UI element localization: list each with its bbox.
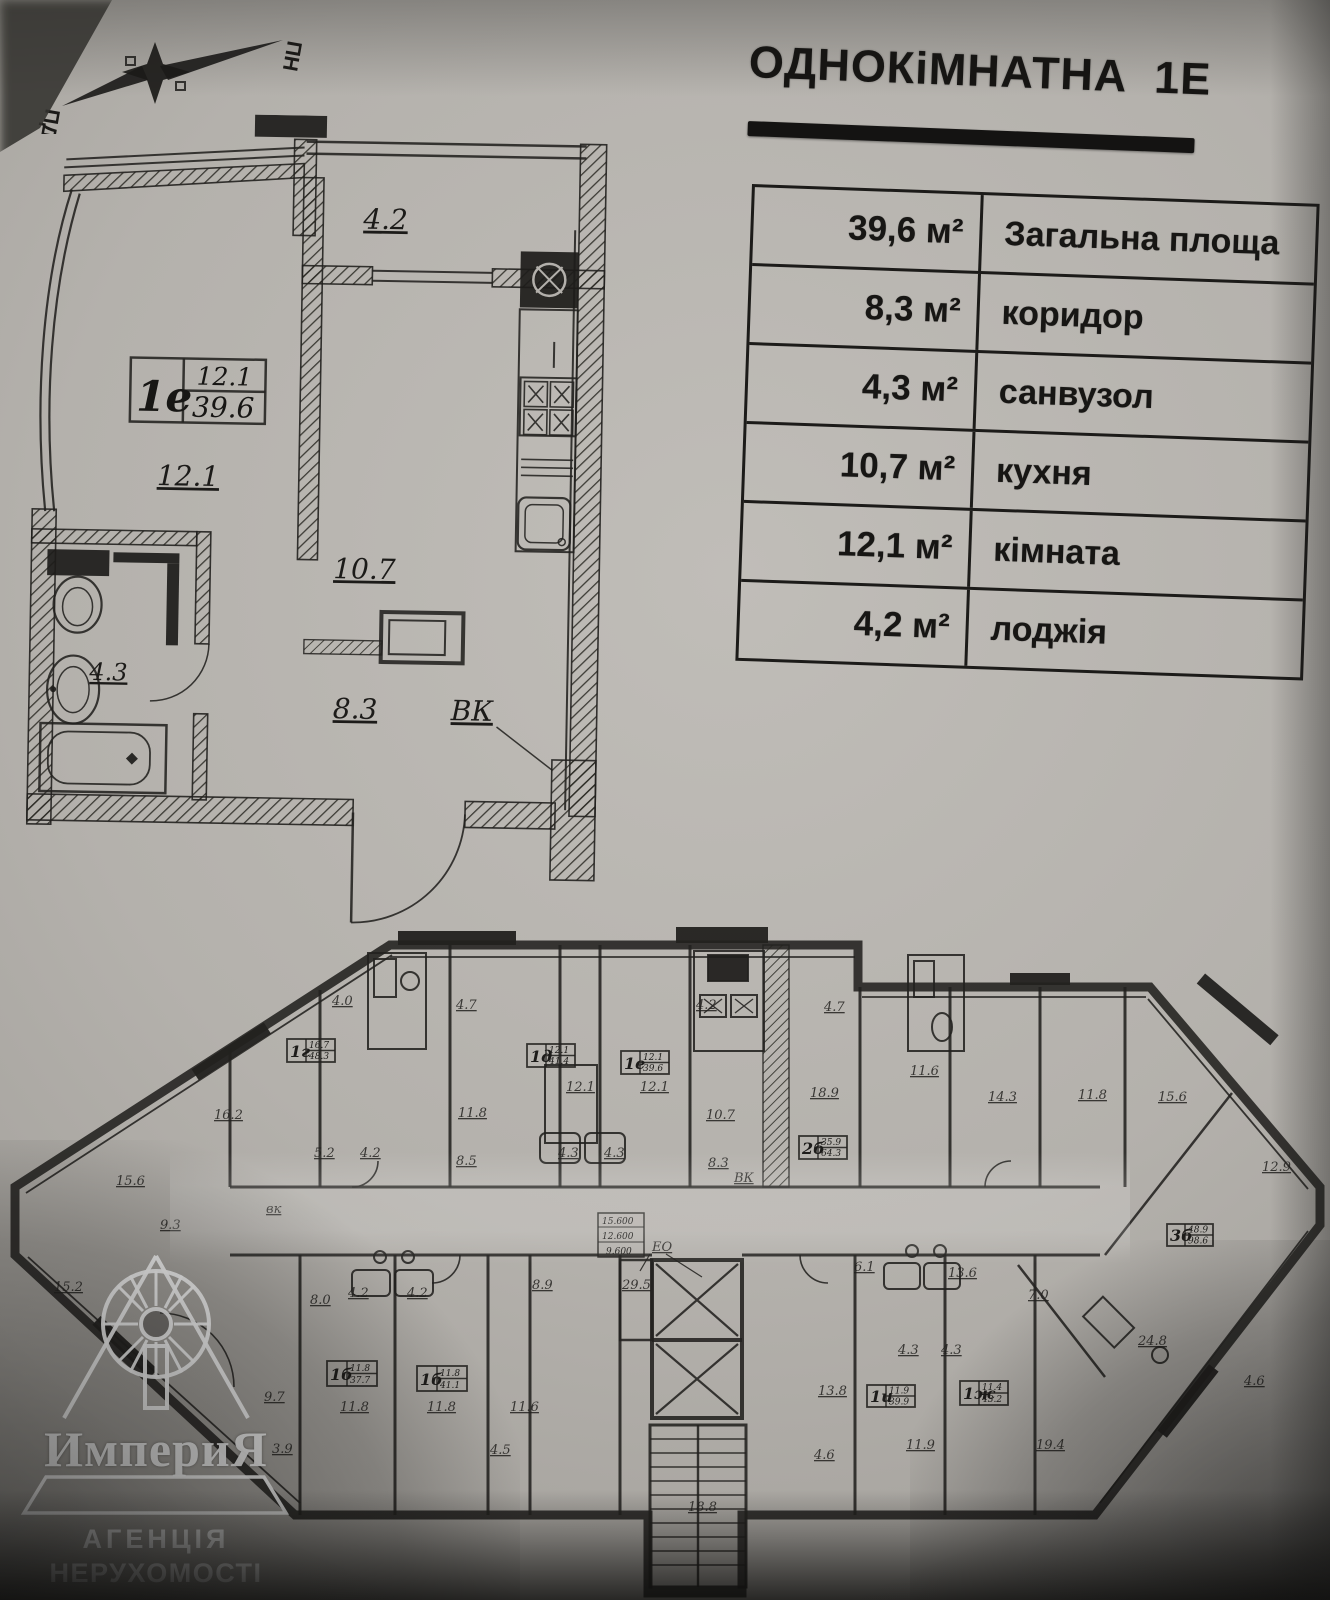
stove-burners [524, 381, 574, 435]
floor-room-label: 4.0 [331, 994, 353, 1009]
area-room-label: коридор [978, 274, 1313, 362]
floor-room-label: 4.2 [347, 1286, 369, 1301]
floor-unit-num: 39.9 [889, 1398, 909, 1408]
elevator-label: ЕО [651, 1240, 672, 1255]
floor-room-label: 4.3 [603, 1146, 625, 1161]
floor-room-label: 5.2 [314, 1146, 335, 1161]
floor-unit-tag: 1б 11.8 37.7 [327, 1361, 377, 1386]
floor-room-label: 4.7 [455, 998, 477, 1013]
counter-strip [304, 640, 382, 655]
floor-room-label: 11.8 [340, 1400, 369, 1415]
unit-room-area: 12.1 [196, 362, 252, 392]
floor-unit-num: 41.1 [439, 1381, 460, 1391]
area-room-label: санвузол [976, 353, 1311, 441]
floor-unit-num: 43.2 [981, 1395, 1002, 1405]
floor-room-label: 13.6 [948, 1266, 977, 1281]
room-label-kitchen: 10.7 [333, 552, 396, 586]
room-label-corridor: 8.3 [333, 692, 378, 726]
bow-window-outer [39, 189, 72, 511]
floor-room-label: 9.3 [160, 1218, 181, 1233]
fridge-inner [389, 620, 446, 655]
floor-unit-num: 98.6 [1188, 1237, 1208, 1247]
area-room-label: кухня [973, 432, 1308, 520]
bathroom-door-arc [150, 643, 209, 702]
elevation-mark: 12.600 [602, 1232, 634, 1242]
area-room-label: кімната [970, 511, 1305, 599]
vent-leader-line [496, 727, 553, 770]
floor-room-label: 11.9 [906, 1438, 935, 1453]
brochure-photo-page: ПН ПД ОДНОКіМНАТНА 1Е 39,6 м² Загальна п… [0, 0, 1330, 1600]
agency-tagline-line2: НЕРУХОМОСТІ [8, 1558, 304, 1589]
loggia-window-lines [306, 142, 586, 159]
floor-room-label: 4.3 [557, 1146, 579, 1161]
floor-room-label: 24.8 [1137, 1334, 1167, 1349]
floor-unit-tag: 3б 48.9 98.6 [1167, 1224, 1213, 1247]
floor-unit-num: 41.4 [548, 1057, 569, 1067]
vent-shaft-label: ВК [450, 694, 495, 728]
floor-room-label: 15.6 [116, 1174, 145, 1189]
vent-shaft-block [550, 760, 596, 881]
elevator-leader-lines [640, 1254, 702, 1277]
floor-unit-num: 12.1 [549, 1046, 569, 1056]
floor-room-label: 8.3 [708, 1156, 729, 1171]
duct-core-wall [763, 945, 789, 1187]
area-room-label: лоджія [967, 590, 1302, 678]
floor-vent-label: вк [266, 1202, 282, 1217]
compass-north-label: ПН [278, 39, 306, 73]
floor-room-label: 10.7 [706, 1108, 736, 1123]
neighbor-balcony-slab [255, 115, 327, 138]
floor-unit-num: 35.9 [821, 1138, 841, 1148]
floor-room-label: 4.5 [489, 1443, 511, 1458]
floor-room-label: 12.9 [1262, 1160, 1291, 1175]
logo-pedestal [8, 1474, 304, 1516]
agency-tagline-line1: АГЕНЦІЯ [8, 1524, 304, 1555]
elevation-marks-box: 15.600 12.600 9.600 [598, 1213, 644, 1257]
bow-window-inner [48, 193, 80, 511]
floor-room-label: 4.7 [823, 1000, 845, 1015]
floor-room-label: 8.5 [456, 1154, 477, 1169]
area-table: 39,6 м² Загальна площа 8,3 м² коридор 4,… [735, 184, 1319, 681]
floor-unit-num: 48.3 [308, 1052, 329, 1062]
counter-drawer-lines [521, 459, 573, 476]
floor-unit-tag: 1д 12.1 41.4 [527, 1044, 575, 1067]
apartment-plan-drawing: 1е 12.1 39.6 4.2 12.1 10.7 8.3 4.3 ВК [11, 111, 645, 942]
entrance-door-leaf [351, 812, 353, 922]
toilet-bowl [53, 576, 102, 633]
floor-room-label: 11.8 [1078, 1088, 1107, 1103]
bathroom-partition [113, 552, 179, 563]
washbasin-inner [57, 666, 90, 713]
floor-room-label: 29.5 [621, 1278, 651, 1293]
floor-unit-num: 37.7 [350, 1376, 370, 1386]
floor-unit-tag: 1б 11.8 41.1 [417, 1366, 467, 1391]
area-value: 8,3 м² [749, 266, 981, 350]
floor-room-label: 4.6 [1243, 1374, 1265, 1389]
unit-id: 1е [136, 372, 193, 422]
floor-room-label: 7.0 [1028, 1288, 1049, 1303]
floor-unit-num: 11.9 [889, 1387, 909, 1397]
elevation-mark: 9.600 [606, 1247, 632, 1257]
agency-name: ИмпериЯ [8, 1424, 304, 1474]
floor-unit-tag: 1ж 11.4 43.2 [960, 1381, 1008, 1405]
floor-vent-label: ВК [733, 1171, 755, 1186]
floor-room-label: 4.3 [940, 1343, 962, 1358]
toilet-bowl-inner [62, 587, 93, 626]
compass-mark-se [176, 82, 185, 90]
floor-room-label: 4.6 [813, 1448, 835, 1463]
entrance-door-arc [351, 812, 465, 924]
floor-room-label: 12.1 [566, 1080, 595, 1095]
floor-room-label: 8.9 [532, 1278, 553, 1293]
wall-bottom-left [27, 794, 353, 826]
floor-room-label: 4.2 [359, 1146, 381, 1161]
floor-room-label: 18.8 [688, 1500, 717, 1515]
agency-logo: ИмпериЯ АГЕНЦІЯ НЕРУХОМОСТІ [8, 1248, 304, 1589]
bathroom-right-wall [195, 532, 211, 644]
wall-bottom-right [465, 801, 555, 829]
floor-unit-num: 16.7 [309, 1041, 329, 1051]
logo-pedestal-outline [24, 1477, 286, 1513]
floor-room-label: 4.3 [897, 1343, 919, 1358]
floor-room-label: 16.2 [214, 1108, 243, 1123]
room-label-loggia: 4.2 [362, 203, 408, 237]
logo-i-dot [141, 1309, 171, 1339]
toilet-tank [47, 549, 109, 576]
floor-room-label: 13.8 [818, 1384, 847, 1399]
bathroom-partition [166, 563, 179, 645]
elevation-mark: 15.600 [602, 1217, 634, 1227]
area-value: 4,2 м² [738, 582, 970, 666]
bathroom-right-wall-stub [192, 714, 207, 800]
bathtub-drain [126, 753, 138, 765]
floor-room-label: 11.8 [458, 1106, 487, 1121]
floor-unit-tag: 1и 11.9 39.9 [867, 1385, 915, 1408]
bathroom-top-wall [32, 529, 197, 546]
room-label-room: 12.1 [157, 459, 220, 493]
floor-room-label: 14.3 [988, 1090, 1017, 1105]
area-value: 10,7 м² [744, 424, 976, 508]
floor-room-label: 8.0 [310, 1293, 331, 1308]
page-title: ОДНОКіМНАТНА 1Е [748, 36, 1310, 109]
floor-room-label: 11.8 [427, 1400, 456, 1415]
floor-unit-id: 1г [290, 1042, 310, 1061]
floor-room-label: 6.1 [854, 1260, 875, 1275]
floor-unit-num: 12.1 [643, 1053, 663, 1063]
floor-room-label: 18.9 [810, 1086, 839, 1101]
compass-mark-nw [126, 57, 135, 65]
compass-star [122, 42, 190, 104]
unit-tag: 1е 12.1 39.6 [130, 358, 266, 425]
floor-room-label: 12.1 [640, 1080, 669, 1095]
floor-unit-tag: 1е 12.1 39.6 [621, 1051, 669, 1074]
kitchen-sink-basin [525, 504, 564, 543]
floor-room-label: 4.2 [695, 998, 717, 1013]
floor-unit-tag: 1г 16.7 48.3 [287, 1039, 335, 1062]
floor-unit-num: 11.8 [440, 1369, 460, 1379]
floor-unit-num: 11.8 [350, 1364, 370, 1374]
floor-room-label: 11.6 [910, 1064, 939, 1079]
area-room-label: Загальна площа [981, 195, 1316, 283]
area-value: 39,6 м² [752, 187, 984, 271]
room-label-bathroom: 4.3 [88, 658, 128, 687]
unit-total-area: 39.6 [192, 391, 255, 425]
loggia-door-window-lines [372, 271, 492, 283]
floor-unit-num: 64.3 [821, 1149, 841, 1159]
floor-room-label: 15.6 [1158, 1090, 1187, 1105]
area-value: 12,1 м² [741, 503, 973, 587]
floor-unit-num: 39.6 [643, 1064, 663, 1074]
title-underline-bar [747, 121, 1194, 153]
floor-room-label: 19.4 [1036, 1438, 1065, 1453]
floor-unit-num: 48.9 [1187, 1226, 1208, 1236]
floor-room-label: 11.6 [510, 1400, 539, 1415]
floor-unit-tag: 2б 35.9 64.3 [799, 1136, 847, 1159]
agency-logo-emblem [8, 1248, 304, 1424]
floor-unit-num: 11.4 [982, 1383, 1002, 1393]
area-value: 4,3 м² [747, 345, 979, 429]
floor-room-label: 4.2 [406, 1286, 428, 1301]
